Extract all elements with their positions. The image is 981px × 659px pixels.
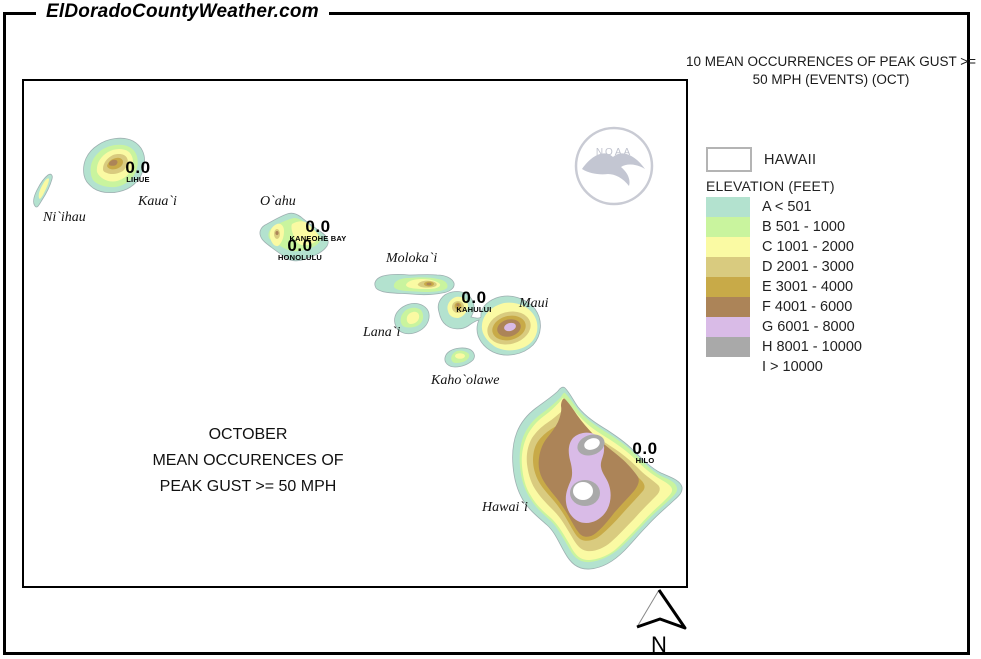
station-honolulu: 0.0 HONOLULU — [270, 238, 330, 262]
island-niihau — [34, 174, 53, 207]
label-maui: Maui — [519, 296, 549, 312]
legend-row: B 501 - 1000 — [706, 217, 978, 237]
station-kahului-name: KAHULUI — [444, 305, 504, 314]
station-honolulu-value: 0.0 — [270, 238, 330, 253]
caption-line2: MEAN OCCURENCES OF — [108, 448, 388, 474]
elevation-legend: HAWAII ELEVATION (FEET) A < 501 B 501 - … — [706, 147, 978, 377]
label-kahoolawe: Kaho`olawe — [431, 373, 499, 389]
islands-map-image: NOAA — [24, 81, 686, 586]
legend-title: ELEVATION (FEET) — [706, 178, 978, 194]
legend-row: I > 10000 — [706, 357, 978, 377]
station-hilo-value: 0.0 — [620, 441, 670, 456]
legend-row: E 3001 - 4000 — [706, 277, 978, 297]
label-hawaii: Hawai`i — [482, 500, 528, 516]
legend-swatch-g — [706, 317, 750, 337]
legend-label-a: A < 501 — [762, 199, 812, 215]
legend-row: A < 501 — [706, 197, 978, 217]
label-lanai: Lana`i — [363, 325, 400, 341]
label-molokai: Moloka`i — [386, 251, 437, 267]
station-hilo: 0.0 HILO — [620, 441, 670, 465]
north-arrow-shape — [637, 590, 685, 628]
map-title-line2: 50 MPH (EVENTS) (OCT) — [683, 71, 979, 89]
station-lihue-value: 0.0 — [116, 160, 160, 175]
legend-swatch-h — [706, 337, 750, 357]
island-kahoolawe — [445, 348, 475, 367]
legend-label-g: G 6001 - 8000 — [762, 319, 855, 335]
legend-label-b: B 501 - 1000 — [762, 219, 845, 235]
legend-swatch-a — [706, 197, 750, 217]
label-kauai: Kaua`i — [138, 194, 177, 210]
legend-label-i: I > 10000 — [762, 359, 823, 375]
legend-swatch-i — [706, 357, 750, 377]
island-hawaii — [513, 387, 682, 569]
station-honolulu-name: HONOLULU — [270, 253, 330, 262]
legend-label-c: C 1001 - 2000 — [762, 239, 854, 255]
legend-row: F 4001 - 6000 — [706, 297, 978, 317]
map-caption: OCTOBER MEAN OCCURENCES OF PEAK GUST >= … — [108, 422, 388, 500]
hawaii-label: HAWAII — [764, 152, 816, 168]
legend-swatch-c — [706, 237, 750, 257]
legend-label-f: F 4001 - 6000 — [762, 299, 852, 315]
station-kaneohe-bay-value: 0.0 — [283, 219, 353, 234]
label-oahu: O`ahu — [260, 194, 296, 210]
legend-swatch-f — [706, 297, 750, 317]
label-niihau: Ni`ihau — [43, 210, 86, 226]
noaa-logo: NOAA — [576, 128, 652, 204]
legend-label-d: D 2001 - 3000 — [762, 259, 854, 275]
station-kahului: 0.0 KAHULUI — [444, 290, 504, 314]
north-arrow: N — [628, 584, 692, 658]
page: ElDoradoCountyWeather.com 10 MEAN OCCURR… — [0, 0, 981, 659]
caption-line3: PEAK GUST >= 50 MPH — [108, 474, 388, 500]
legend-label-e: E 3001 - 4000 — [762, 279, 853, 295]
legend-swatch-d — [706, 257, 750, 277]
north-label: N — [651, 632, 667, 657]
legend-row: G 6001 - 8000 — [706, 317, 978, 337]
legend-swatch-b — [706, 217, 750, 237]
legend-swatch-e — [706, 277, 750, 297]
map-title-line1: 10 MEAN OCCURRENCES OF PEAK GUST >= — [683, 53, 979, 71]
map-title: 10 MEAN OCCURRENCES OF PEAK GUST >= 50 M… — [683, 53, 979, 89]
legend-row: H 8001 - 10000 — [706, 337, 978, 357]
hawaii-outline-swatch — [706, 147, 752, 172]
legend-row: D 2001 - 3000 — [706, 257, 978, 277]
caption-line1: OCTOBER — [108, 422, 388, 448]
station-kahului-value: 0.0 — [444, 290, 504, 305]
legend-label-h: H 8001 - 10000 — [762, 339, 862, 355]
site-title: ElDoradoCountyWeather.com — [36, 1, 329, 23]
station-hilo-name: HILO — [620, 456, 670, 465]
station-lihue: 0.0 LIHUE — [116, 160, 160, 184]
legend-region-row: HAWAII — [706, 147, 978, 172]
hawaii-map: NOAA Ni`ihau Kaua`i O`ahu Moloka`i Lana`… — [22, 79, 688, 588]
station-lihue-name: LIHUE — [116, 175, 160, 184]
legend-row: C 1001 - 2000 — [706, 237, 978, 257]
island-molokai — [375, 274, 454, 294]
